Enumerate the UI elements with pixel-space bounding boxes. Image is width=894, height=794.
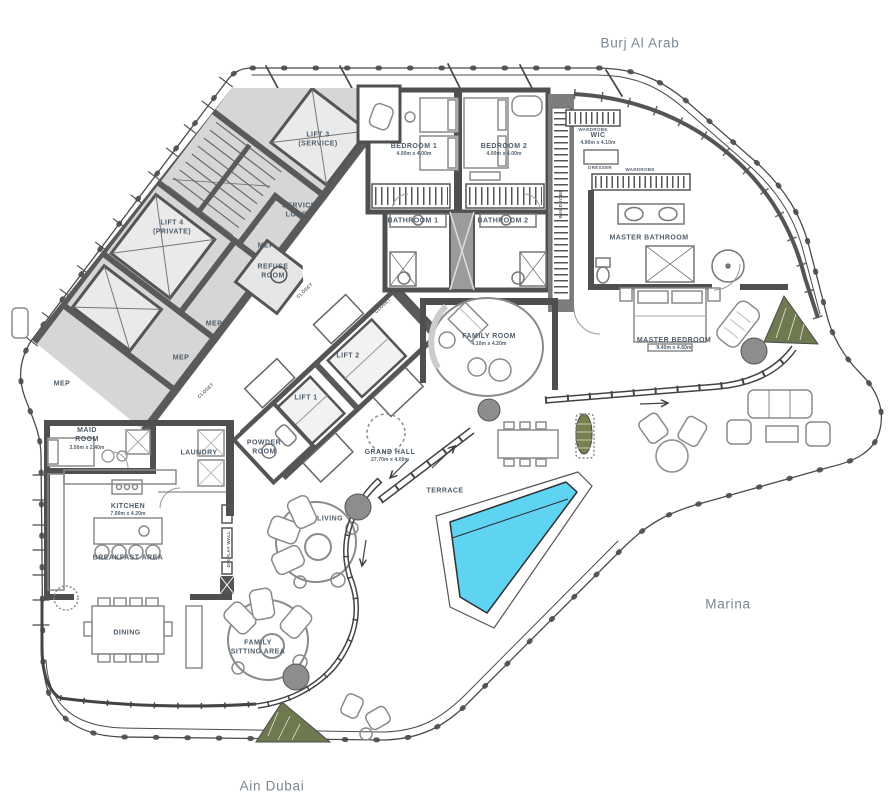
- family-room-shape: [420, 298, 558, 396]
- kitchen-block: [44, 420, 234, 600]
- pool-area: [436, 472, 592, 628]
- hedge-triangle-right: [764, 296, 818, 344]
- hedge-triangle-bottom: [256, 702, 330, 742]
- planter-circle: [283, 664, 309, 690]
- context-label-ain-dubai: Ain Dubai: [240, 779, 305, 794]
- grand-hall-shape: [367, 414, 405, 452]
- context-label-burj-al-arab: Burj Al Arab: [601, 36, 680, 51]
- bedroom-block: [358, 86, 548, 290]
- dining-area: [54, 586, 202, 668]
- floor-plan-drawing: [0, 0, 894, 794]
- planter-circle: [741, 338, 767, 364]
- planter-circle: [478, 399, 500, 421]
- context-label-marina: Marina: [705, 597, 750, 612]
- floor-plan: LIFT 3(SERVICE)LIFT 4(PRIVATE)SERVICELOB…: [0, 0, 894, 794]
- planter-circle: [345, 494, 371, 520]
- pool-shape: [450, 482, 577, 613]
